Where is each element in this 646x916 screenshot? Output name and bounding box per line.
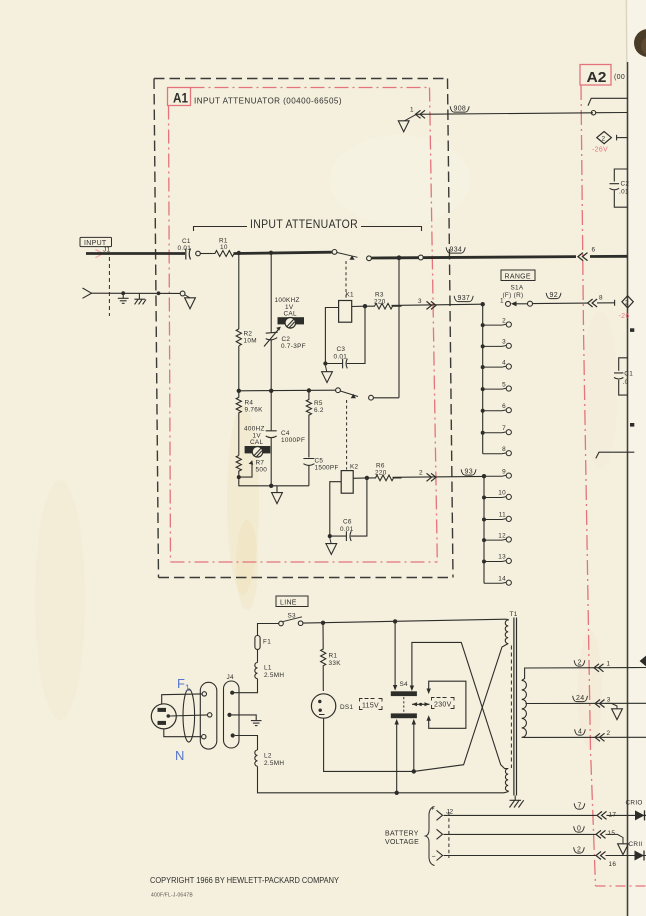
svg-text:K2: K2 <box>350 464 359 471</box>
svg-text:400F/FL-J-0647B: 400F/FL-J-0647B <box>151 893 193 899</box>
svg-text:R5: R5 <box>314 400 323 407</box>
svg-text:(F) (R): (F) (R) <box>503 292 524 299</box>
svg-text:-26V: -26V <box>592 147 608 154</box>
svg-text:(00: (00 <box>614 74 625 81</box>
svg-text:2: 2 <box>577 847 581 854</box>
svg-text:DS1: DS1 <box>340 704 353 711</box>
svg-text:+: + <box>431 806 435 813</box>
svg-text:230V: 230V <box>434 702 452 709</box>
svg-text:220: 220 <box>374 298 386 305</box>
svg-text:92: 92 <box>550 292 558 299</box>
svg-text:15: 15 <box>608 830 616 837</box>
svg-text:7: 7 <box>578 803 582 810</box>
svg-text:10M: 10M <box>244 338 257 345</box>
svg-text:9: 9 <box>502 468 506 475</box>
svg-text:2: 2 <box>578 660 582 667</box>
svg-text:5: 5 <box>502 381 506 388</box>
svg-text:BATTERY: BATTERY <box>385 831 419 838</box>
svg-text:0.01: 0.01 <box>334 353 348 360</box>
svg-text:500: 500 <box>256 467 268 474</box>
svg-text:8: 8 <box>599 295 603 302</box>
svg-text:S4: S4 <box>400 681 409 688</box>
svg-text:14: 14 <box>498 576 506 583</box>
svg-text:−: − <box>432 853 436 860</box>
svg-text:1: 1 <box>410 107 414 114</box>
svg-text:33K: 33K <box>329 660 342 667</box>
svg-text:R4: R4 <box>245 400 254 407</box>
svg-text:-26: -26 <box>619 313 630 320</box>
svg-text:6: 6 <box>502 403 506 410</box>
svg-text:0.01: 0.01 <box>178 245 192 252</box>
svg-text:R1: R1 <box>329 653 338 660</box>
svg-text:4: 4 <box>578 729 582 736</box>
svg-text:937: 937 <box>458 295 471 302</box>
svg-text:VOLTAGE: VOLTAGE <box>385 839 419 846</box>
svg-text:F1: F1 <box>263 639 271 646</box>
svg-text:7: 7 <box>502 425 506 432</box>
svg-text:0.7-3PF: 0.7-3PF <box>281 343 306 350</box>
svg-text:A2: A2 <box>587 70 607 86</box>
svg-text:3: 3 <box>502 339 506 346</box>
svg-text:K1: K1 <box>346 292 355 299</box>
svg-text:6: 6 <box>592 247 596 254</box>
svg-text:908: 908 <box>454 106 467 113</box>
svg-text:CAL: CAL <box>250 439 263 446</box>
svg-text:CRII: CRII <box>629 841 643 848</box>
svg-text:T1: T1 <box>510 611 518 618</box>
svg-text:.01: .01 <box>619 189 629 196</box>
svg-text:COPYRIGHT 1966 BY HEWLETT-PACK: COPYRIGHT 1966 BY HEWLETT-PACKARD COMPAN… <box>150 876 340 885</box>
svg-text:2: 2 <box>602 136 606 143</box>
svg-text:RANGE: RANGE <box>505 273 531 280</box>
svg-text:4: 4 <box>502 359 506 366</box>
svg-text:C2: C2 <box>282 336 291 343</box>
svg-text:220: 220 <box>375 469 387 476</box>
svg-text:L1: L1 <box>264 665 272 672</box>
svg-text:C3: C3 <box>337 346 346 353</box>
svg-text:0.01: 0.01 <box>340 526 354 533</box>
svg-text:13: 13 <box>498 554 506 561</box>
svg-text:2.5MH: 2.5MH <box>264 672 284 679</box>
svg-text:L2: L2 <box>264 753 272 760</box>
svg-text:C2: C2 <box>621 181 630 188</box>
svg-text:10: 10 <box>220 244 228 251</box>
svg-text:2: 2 <box>419 470 423 477</box>
svg-text:2: 2 <box>502 317 506 324</box>
svg-text:CRIO: CRIO <box>626 800 643 807</box>
svg-text:2.5MH: 2.5MH <box>264 760 284 767</box>
svg-text:A1: A1 <box>173 90 188 106</box>
svg-text:R7: R7 <box>256 460 265 467</box>
svg-text:11: 11 <box>499 512 506 519</box>
svg-text:1500PF: 1500PF <box>315 465 339 472</box>
svg-text:3: 3 <box>418 298 422 305</box>
svg-text:J4: J4 <box>227 674 234 681</box>
svg-text:9.76K: 9.76K <box>245 407 264 414</box>
svg-text:C5: C5 <box>315 458 324 465</box>
svg-text:8: 8 <box>502 446 506 453</box>
svg-text:3: 3 <box>607 696 611 703</box>
svg-text:N: N <box>175 748 184 763</box>
svg-text:12: 12 <box>498 532 506 539</box>
svg-text:6.2: 6.2 <box>314 407 324 414</box>
svg-text:LINE: LINE <box>280 599 297 606</box>
svg-text:J2: J2 <box>446 809 453 816</box>
svg-text:C1: C1 <box>624 371 633 378</box>
svg-text:.0: .0 <box>623 379 629 386</box>
svg-text:C1: C1 <box>182 238 191 245</box>
svg-text:S1A: S1A <box>511 284 524 291</box>
svg-text:0: 0 <box>577 826 581 833</box>
svg-text:INPUT ATTENUATOR (00400-66505): INPUT ATTENUATOR (00400-66505) <box>194 97 342 106</box>
svg-text:2: 2 <box>607 730 611 737</box>
svg-text:C6: C6 <box>343 519 352 526</box>
svg-text:24: 24 <box>576 695 584 702</box>
svg-text:C4: C4 <box>281 430 290 437</box>
svg-text:R2: R2 <box>244 331 253 338</box>
svg-text:10: 10 <box>498 490 506 497</box>
svg-text:1: 1 <box>607 661 611 668</box>
svg-text:1000PF: 1000PF <box>281 437 305 444</box>
svg-text:115V: 115V <box>362 703 379 710</box>
svg-text:1: 1 <box>500 298 504 305</box>
svg-text:93: 93 <box>465 469 473 476</box>
svg-text:2: 2 <box>625 300 629 307</box>
svg-text:CAL: CAL <box>284 311 297 318</box>
svg-text:16: 16 <box>609 861 617 868</box>
svg-text:934: 934 <box>450 247 463 254</box>
svg-text:INPUT ATTENUATOR: INPUT ATTENUATOR <box>250 219 358 231</box>
